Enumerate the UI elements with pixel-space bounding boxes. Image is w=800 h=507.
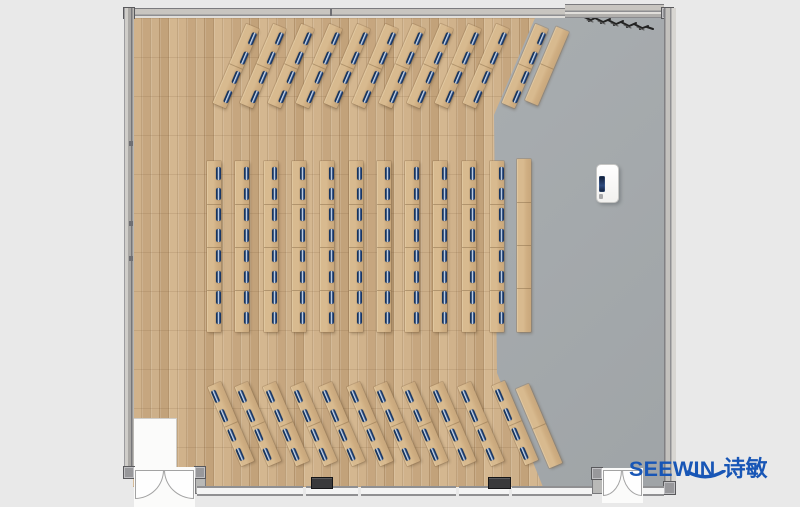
chair-mark <box>216 250 221 263</box>
chair-mark <box>230 70 239 83</box>
desk-seam <box>474 421 487 427</box>
chair-mark <box>378 50 387 63</box>
chair-mark <box>470 312 475 325</box>
chair-mark <box>442 229 447 242</box>
seewin-logo: SEEWIN诗敏 <box>629 451 797 493</box>
desk-strip <box>320 161 334 332</box>
desk-seam <box>256 63 269 69</box>
chair-mark <box>385 250 390 263</box>
chair-mark <box>357 271 362 284</box>
desk-seam <box>280 421 293 427</box>
chair-mark <box>210 389 219 402</box>
chair-mark <box>282 428 291 441</box>
desk-strip <box>235 161 249 332</box>
chair-mark <box>357 229 362 242</box>
floorplan-canvas: SEEWIN诗敏 <box>0 0 800 507</box>
desk-strip <box>207 161 221 332</box>
chair-mark <box>365 428 374 441</box>
top-wall <box>124 8 567 18</box>
chair-mark <box>470 291 475 304</box>
chair-mark <box>442 312 447 325</box>
chair-mark <box>412 408 421 421</box>
desk-seam <box>479 63 492 69</box>
chair-mark <box>329 312 334 325</box>
desk-seam <box>224 421 237 427</box>
chair-mark <box>385 167 390 180</box>
chair-mark <box>345 447 354 460</box>
window-wall-segment <box>361 486 456 496</box>
desk-seam <box>292 247 306 248</box>
desk-strip <box>490 161 504 332</box>
chair-mark <box>272 167 277 180</box>
chair-mark <box>216 312 221 325</box>
chair-mark <box>329 250 334 263</box>
chair-mark <box>520 70 529 83</box>
chair-mark <box>314 70 323 83</box>
chair-mark <box>499 291 504 304</box>
desk-seam <box>207 204 221 205</box>
chair-mark <box>414 167 419 180</box>
chair-mark <box>481 70 490 83</box>
chair-mark <box>272 291 277 304</box>
chair-mark <box>329 167 334 180</box>
chair-mark <box>330 31 339 44</box>
chair-mark <box>470 208 475 221</box>
chair-mark <box>519 447 528 460</box>
chair-mark <box>385 408 394 421</box>
logo-swoosh <box>686 470 726 482</box>
desk-strip <box>377 161 391 332</box>
desk-seam <box>284 63 297 69</box>
desk-seam <box>451 63 464 69</box>
chair-mark <box>385 229 390 242</box>
chair-mark <box>290 447 299 460</box>
desk-seam <box>368 63 381 69</box>
chair-mark <box>272 188 277 201</box>
desk-seam <box>540 63 553 69</box>
desk-seam <box>349 204 363 205</box>
desk-strip <box>292 161 306 332</box>
desk-seam <box>446 421 459 427</box>
chair-mark <box>442 208 447 221</box>
chair-mark <box>239 50 248 63</box>
chair-mark <box>265 389 274 402</box>
chair-mark <box>386 31 395 44</box>
chair-mark <box>461 50 470 63</box>
chair-mark <box>300 229 305 242</box>
desk-seam <box>517 245 531 246</box>
chair-mark <box>442 167 447 180</box>
chair-mark <box>218 408 227 421</box>
chair-mark <box>421 428 430 441</box>
chair-mark <box>489 50 498 63</box>
right-wall <box>664 8 676 495</box>
chair-mark <box>385 188 390 201</box>
desk-seam <box>292 204 306 205</box>
desk-strip <box>349 161 363 332</box>
desk-seam <box>307 421 320 427</box>
chair-mark <box>472 89 481 102</box>
chair-mark <box>300 271 305 284</box>
chair-mark <box>244 291 249 304</box>
window-wall-segment <box>197 486 303 496</box>
chair-mark <box>329 208 334 221</box>
chair-mark <box>441 31 450 44</box>
chair-mark <box>246 408 255 421</box>
desk-seam <box>423 63 436 69</box>
chair-mark <box>244 250 249 263</box>
desk-seam <box>433 247 447 248</box>
chair-mark <box>357 250 362 263</box>
desk-seam <box>391 421 404 427</box>
chair-mark <box>414 250 419 263</box>
chair-mark <box>237 389 246 402</box>
chair-mark <box>361 89 370 102</box>
chair-mark <box>357 312 362 325</box>
chair-mark <box>453 70 462 83</box>
chair-mark <box>309 428 318 441</box>
wall-pillar <box>488 477 511 489</box>
desk-seam <box>509 420 522 426</box>
chair-mark <box>329 291 334 304</box>
chair-mark <box>385 271 390 284</box>
desk-seam <box>312 63 325 69</box>
chair-mark <box>499 312 504 325</box>
chair-mark <box>247 31 256 44</box>
desk-strip <box>264 161 278 332</box>
chair-mark <box>414 271 419 284</box>
desk-seam <box>235 204 249 205</box>
chair-mark <box>397 70 406 83</box>
chair-mark <box>306 89 315 102</box>
chair-mark <box>266 50 275 63</box>
chair-mark <box>244 167 249 180</box>
chair-mark <box>275 31 284 44</box>
desk-seam <box>252 421 265 427</box>
left-wall <box>124 8 134 479</box>
chair-mark <box>512 89 521 102</box>
chair-mark <box>405 50 414 63</box>
chair-mark <box>470 167 475 180</box>
chair-mark <box>494 389 503 402</box>
chair-mark <box>216 271 221 284</box>
chair-mark <box>497 31 506 44</box>
chair-mark <box>357 291 362 304</box>
chair-mark <box>272 229 277 242</box>
desk-seam <box>363 421 376 427</box>
chair-mark <box>445 89 454 102</box>
chair-mark <box>469 31 478 44</box>
chair-mark <box>300 291 305 304</box>
chair-mark <box>216 229 221 242</box>
chair-mark <box>385 291 390 304</box>
desk-seam <box>419 421 432 427</box>
chair-mark <box>294 50 303 63</box>
chair-mark <box>528 50 537 63</box>
chair-mark <box>216 208 221 221</box>
desk-seam <box>349 247 363 248</box>
chair-mark <box>414 291 419 304</box>
desk-seam <box>405 204 419 205</box>
chair-mark <box>460 389 469 402</box>
chair-mark <box>389 89 398 102</box>
desk-seam <box>533 423 546 429</box>
chair-mark <box>244 229 249 242</box>
chair-mark <box>357 167 362 180</box>
counter-middle-right <box>517 159 531 332</box>
chair-mark <box>226 428 235 441</box>
chair-mark <box>254 428 263 441</box>
desk-seam <box>320 204 334 205</box>
desk-seam <box>405 247 419 248</box>
desk-seam <box>377 247 391 248</box>
chair-mark <box>278 89 287 102</box>
chair-mark <box>433 50 442 63</box>
desk-seam <box>490 204 504 205</box>
desk-seam <box>340 63 353 69</box>
chair-mark <box>272 312 277 325</box>
chair-mark <box>244 271 249 284</box>
desk-seam <box>517 202 531 203</box>
podium-screen <box>599 176 605 192</box>
chair-mark <box>470 250 475 263</box>
chair-mark <box>442 271 447 284</box>
chair-mark <box>358 31 367 44</box>
chair-mark <box>216 188 221 201</box>
chair-mark <box>476 428 485 441</box>
desk-seam <box>462 247 476 248</box>
chair-mark <box>329 229 334 242</box>
chair-mark <box>333 89 342 102</box>
chair-mark <box>499 271 504 284</box>
chair-mark <box>350 50 359 63</box>
chair-mark <box>385 312 390 325</box>
desk-strip <box>405 161 419 332</box>
chair-mark <box>273 408 282 421</box>
left-wall-joint <box>129 221 133 226</box>
chair-mark <box>329 408 338 421</box>
desk-seam <box>518 63 531 69</box>
podium <box>596 164 619 203</box>
chair-mark <box>414 312 419 325</box>
chair-mark <box>293 389 302 402</box>
chair-mark <box>414 229 419 242</box>
chair-mark <box>484 447 493 460</box>
chair-mark <box>286 70 295 83</box>
chair-mark <box>499 229 504 242</box>
chair-mark <box>429 447 438 460</box>
chair-mark <box>417 89 426 102</box>
chair-mark <box>337 428 346 441</box>
chair-mark <box>301 408 310 421</box>
desk-seam <box>320 247 334 248</box>
chair-mark <box>369 70 378 83</box>
podium-port <box>599 194 603 199</box>
chair-mark <box>414 208 419 221</box>
desk-seam <box>235 247 249 248</box>
chair-mark <box>470 271 475 284</box>
chair-mark <box>414 31 423 44</box>
chair-mark <box>499 188 504 201</box>
desk-seam <box>264 247 278 248</box>
desks-layer <box>0 0 800 507</box>
chair-mark <box>442 291 447 304</box>
chair-mark <box>511 427 520 440</box>
left-door-jamb-post <box>194 466 206 479</box>
chair-mark <box>376 389 385 402</box>
chair-mark <box>499 250 504 263</box>
chair-mark <box>234 447 243 460</box>
desk-seam <box>395 63 408 69</box>
chair-mark <box>300 250 305 263</box>
chair-mark <box>457 447 466 460</box>
chair-mark <box>357 208 362 221</box>
chair-mark <box>244 188 249 201</box>
chair-mark <box>470 188 475 201</box>
chair-mark <box>349 389 358 402</box>
desk-seam <box>490 247 504 248</box>
chair-mark <box>272 271 277 284</box>
chair-mark <box>401 447 410 460</box>
desk-seam <box>264 204 278 205</box>
chair-mark <box>499 167 504 180</box>
left-wall-joint <box>129 141 133 146</box>
chair-mark <box>258 70 267 83</box>
chair-mark <box>318 447 327 460</box>
desk-strip <box>433 161 447 332</box>
chair-mark <box>244 208 249 221</box>
chair-mark <box>385 208 390 221</box>
desk-seam <box>433 204 447 205</box>
desk-seam <box>335 421 348 427</box>
chair-mark <box>432 389 441 402</box>
chair-mark <box>502 408 511 421</box>
chair-mark <box>442 188 447 201</box>
logo-text-zh: 诗敏 <box>724 456 768 481</box>
top-wall-right-segment <box>565 4 664 14</box>
chair-mark <box>300 312 305 325</box>
chair-mark <box>499 208 504 221</box>
chair-mark <box>222 89 231 102</box>
chair-mark <box>329 271 334 284</box>
chair-mark <box>414 188 419 201</box>
desk-seam <box>207 247 221 248</box>
desk-seam <box>462 204 476 205</box>
chair-mark <box>300 167 305 180</box>
chair-mark <box>322 50 331 63</box>
chair-mark <box>342 70 351 83</box>
top-wall-inner-line <box>565 14 664 18</box>
window-wall-segment <box>512 486 592 496</box>
chair-mark <box>302 31 311 44</box>
top-wall-joint <box>330 9 332 16</box>
chair-mark <box>216 167 221 180</box>
chair-mark <box>250 89 259 102</box>
chair-mark <box>216 291 221 304</box>
chair-mark <box>272 250 277 263</box>
desk-strip <box>462 161 476 332</box>
chair-mark <box>393 428 402 441</box>
chair-mark <box>448 428 457 441</box>
chair-mark <box>329 188 334 201</box>
chair-mark <box>404 389 413 402</box>
left-wall-joint <box>129 256 133 261</box>
desk-seam <box>229 63 242 69</box>
chair-mark <box>440 408 449 421</box>
chair-mark <box>425 70 434 83</box>
chair-mark <box>272 208 277 221</box>
chair-mark <box>357 408 366 421</box>
chair-mark <box>470 229 475 242</box>
chair-mark <box>262 447 271 460</box>
chair-mark <box>373 447 382 460</box>
chair-mark <box>442 250 447 263</box>
chair-mark <box>536 31 545 44</box>
chair-mark <box>357 188 362 201</box>
chair-mark <box>468 408 477 421</box>
wall-pillar <box>311 477 333 489</box>
desk-seam <box>517 288 531 289</box>
chair-mark <box>300 188 305 201</box>
chair-mark <box>321 389 330 402</box>
chair-mark <box>244 312 249 325</box>
desk-seam <box>377 204 391 205</box>
chair-mark <box>300 208 305 221</box>
